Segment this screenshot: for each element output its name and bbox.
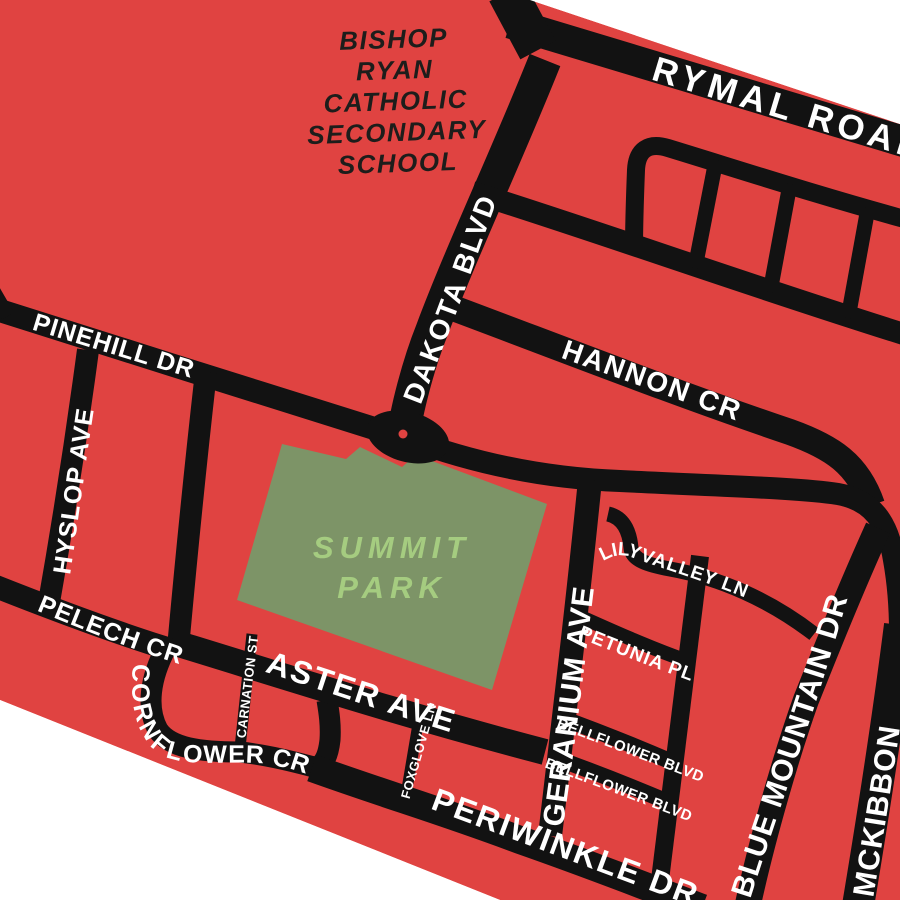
junction-dot: [399, 430, 408, 439]
summit-park-label-line-1: SUMMIT: [313, 530, 471, 565]
school-label-line-4: SECONDARY: [307, 114, 488, 150]
neighbourhood-map: RYMAL ROAD DAKOTA BLVD HANNON CR PINEHIL…: [0, 0, 900, 900]
dakota-north-stub-road: [507, 0, 538, 50]
summit-park-label-line-2: PARK: [337, 570, 447, 605]
school-label-line-2: RYAN: [355, 54, 433, 87]
school-label-line-3: CATHOLIC: [323, 83, 468, 118]
school-label-line-1: BISHOP: [339, 22, 449, 56]
map-canvas: RYMAL ROAD DAKOTA BLVD HANNON CR PINEHIL…: [0, 0, 900, 900]
school-label-line-5: SCHOOL: [337, 146, 458, 180]
